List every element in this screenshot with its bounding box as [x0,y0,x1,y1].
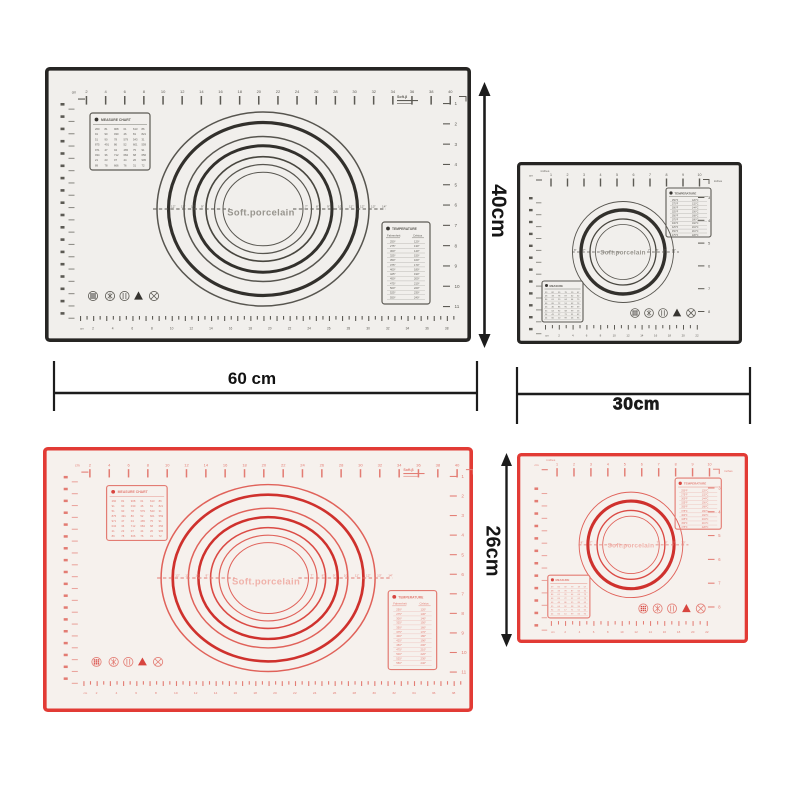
svg-text:425°F: 425°F [681,518,688,521]
svg-text:30: 30 [372,691,376,695]
svg-text:6: 6 [455,203,458,208]
svg-text:216°C: 216°C [692,231,699,233]
svg-text:666: 666 [114,163,119,167]
svg-text:9": 9" [673,541,676,545]
svg-text:90: 90 [105,132,108,136]
svg-text:36: 36 [425,327,429,331]
svg-text:30cm: 30cm [613,394,660,414]
svg-text:684: 684 [140,524,145,528]
svg-text:Celsius: Celsius [413,234,423,238]
svg-text:2: 2 [96,691,98,695]
svg-text:210°: 210° [421,648,427,652]
svg-text:68: 68 [150,524,154,528]
svg-text:10: 10 [161,89,166,94]
svg-text:8: 8 [155,691,157,695]
svg-text:12: 12 [626,334,630,338]
svg-text:34: 34 [391,89,396,94]
svg-text:01: 01 [124,127,127,131]
svg-text:200°: 200° [421,643,427,647]
svg-text:24: 24 [313,691,317,695]
svg-text:450°: 450° [396,643,402,647]
svg-text:24: 24 [307,327,311,331]
svg-text:475°F: 475°F [672,235,679,237]
svg-text:Soft.porcelain: Soft.porcelain [232,577,300,587]
svg-text:32: 32 [378,462,382,467]
svg-text:12": 12" [360,205,365,209]
svg-text:613: 613 [150,499,155,503]
svg-text:10": 10" [191,205,196,209]
svg-text:7": 7" [648,248,651,252]
svg-text:350°F: 350°F [672,215,679,217]
svg-text:MEASURE: MEASURE [550,284,564,288]
svg-text:500°: 500° [396,652,402,656]
svg-text:192°C: 192°C [692,223,699,225]
svg-text:132°C: 132°C [692,204,699,206]
svg-text:04: 04 [114,148,117,152]
svg-text:034: 034 [95,153,100,157]
svg-text:250°F: 250°F [672,200,679,202]
svg-text:10: 10 [174,691,178,695]
svg-text:579: 579 [140,509,145,513]
svg-text:7": 7" [590,541,593,545]
svg-text:18: 18 [237,89,242,94]
svg-text:47: 47 [121,519,125,523]
svg-text:250°: 250° [396,607,402,611]
svg-text:46: 46 [124,132,127,136]
svg-text:9: 9 [692,463,694,467]
svg-text:36: 36 [105,153,108,157]
svg-text:34: 34 [412,691,416,695]
svg-text:22: 22 [276,89,281,94]
svg-text:Soft.porcelain: Soft.porcelain [600,249,645,256]
svg-text:8: 8 [455,243,458,248]
svg-text:543: 543 [133,137,138,141]
svg-text:475°: 475° [390,281,396,285]
svg-text:MEASURE CHART: MEASURE CHART [101,118,132,122]
svg-text:68: 68 [133,153,136,157]
svg-text:8: 8 [151,327,153,331]
svg-text:Fahrenheit: Fahrenheit [393,602,407,606]
svg-text:150°: 150° [414,253,420,257]
svg-text:40: 40 [448,89,453,94]
svg-text:TEMPERATURE: TEMPERATURE [675,191,697,195]
svg-text:76: 76 [124,163,127,167]
svg-text:12": 12" [366,574,371,578]
svg-text:9": 9" [333,574,336,578]
svg-text:7": 7" [305,205,308,209]
svg-text:275°: 275° [396,612,402,616]
svg-text:28: 28 [347,327,351,331]
svg-text:8": 8" [656,248,659,252]
svg-text:72: 72 [159,534,163,538]
svg-text:78: 78 [114,137,117,141]
svg-text:21: 21 [112,529,116,533]
svg-text:9": 9" [664,248,667,252]
svg-text:4: 4 [600,173,602,177]
svg-text:36: 36 [121,524,125,528]
svg-text:5: 5 [616,173,618,177]
svg-text:2: 2 [89,462,91,467]
svg-text:86: 86 [159,499,163,503]
svg-text:240°: 240° [421,661,427,665]
svg-text:31: 31 [133,163,136,167]
svg-text:90: 90 [105,137,108,141]
svg-text:375°F: 375°F [681,510,688,513]
svg-text:525°: 525° [390,291,396,295]
svg-text:10: 10 [707,463,711,467]
svg-text:38: 38 [445,327,449,331]
svg-text:971: 971 [112,519,117,523]
svg-text:2: 2 [567,173,569,177]
svg-text:cm: cm [75,464,80,468]
svg-text:46: 46 [140,504,144,508]
svg-text:90: 90 [121,504,125,508]
svg-text:325°F: 325°F [672,212,679,214]
svg-text:18: 18 [248,327,252,331]
svg-text:400°: 400° [396,634,402,638]
svg-text:91: 91 [95,132,98,136]
svg-text:995: 995 [159,529,164,533]
svg-text:543: 543 [150,509,155,513]
svg-text:325°: 325° [396,621,402,625]
svg-text:908: 908 [114,127,119,131]
svg-text:cm: cm [534,463,539,467]
svg-text:450°F: 450°F [681,522,688,525]
svg-text:3: 3 [455,142,458,147]
svg-text:32: 32 [372,89,377,94]
svg-text:36: 36 [432,691,436,695]
svg-text:01: 01 [140,499,144,503]
svg-text:425°F: 425°F [672,227,679,229]
svg-text:190°: 190° [421,639,427,643]
svg-text:9": 9" [327,205,330,209]
svg-text:8: 8 [675,463,677,467]
svg-text:240°: 240° [414,295,420,299]
svg-text:180°: 180° [414,267,420,271]
svg-text:9": 9" [206,574,209,578]
svg-text:26: 26 [333,691,337,695]
svg-text:20: 20 [691,630,695,634]
svg-text:16: 16 [663,630,667,634]
svg-text:375°F: 375°F [672,219,679,221]
svg-text:400°: 400° [390,267,396,271]
svg-text:3: 3 [590,463,592,467]
svg-text:Soft.porcelain: Soft.porcelain [608,542,655,549]
svg-text:2: 2 [455,122,458,127]
svg-text:81: 81 [133,132,136,136]
svg-text:971: 971 [95,148,100,152]
svg-text:14": 14" [382,205,387,209]
svg-text:cm: cm [529,174,534,178]
svg-text:90: 90 [121,509,125,513]
svg-text:160°: 160° [414,258,420,262]
svg-text:22: 22 [705,630,709,634]
svg-text:4: 4 [112,327,114,331]
svg-text:Celsius: Celsius [420,602,430,606]
svg-text:10": 10" [195,574,200,578]
svg-text:550°: 550° [396,661,402,665]
svg-text:38: 38 [429,89,434,94]
svg-text:20: 20 [682,334,686,338]
svg-text:23: 23 [105,158,108,162]
svg-text:156°C: 156°C [692,212,699,214]
svg-text:8": 8" [574,248,577,252]
svg-text:8": 8" [316,205,319,209]
svg-text:180°C: 180°C [702,510,709,513]
svg-text:14": 14" [388,574,393,578]
svg-text:10: 10 [613,334,617,338]
svg-text:11": 11" [355,574,359,578]
svg-text:425°: 425° [396,639,402,643]
svg-text:22: 22 [695,334,699,338]
svg-text:170°: 170° [421,630,427,634]
svg-text:07: 07 [114,158,117,162]
svg-text:12: 12 [194,691,198,695]
svg-text:875: 875 [95,143,100,147]
svg-text:8": 8" [322,574,325,578]
svg-text:350°: 350° [396,625,402,629]
svg-text:821: 821 [142,132,147,136]
svg-text:86: 86 [114,143,117,147]
svg-text:91: 91 [142,148,145,152]
svg-text:210°: 210° [414,281,420,285]
svg-text:20: 20 [268,327,272,331]
svg-text:666: 666 [131,534,136,538]
svg-text:31: 31 [150,534,154,538]
svg-text:12: 12 [634,630,638,634]
svg-text:300°F: 300°F [672,208,679,210]
svg-text:MEASURE: MEASURE [556,578,570,582]
svg-text:204°C: 204°C [692,227,699,229]
svg-text:6: 6 [641,463,643,467]
svg-text:inches: inches [546,458,555,462]
svg-text:300°: 300° [396,616,402,620]
svg-text:130°: 130° [414,244,420,248]
svg-text:28: 28 [333,89,338,94]
svg-text:216°C: 216°C [702,522,709,525]
svg-text:275°F: 275°F [681,493,688,496]
svg-text:170°: 170° [414,263,420,267]
svg-text:9: 9 [682,173,684,177]
svg-text:26: 26 [314,89,319,94]
svg-text:120°: 120° [414,240,420,244]
svg-text:220°: 220° [421,652,427,656]
svg-text:525°: 525° [396,657,402,661]
svg-text:550°: 550° [390,295,396,299]
svg-text:190°: 190° [414,272,420,276]
svg-text:Soft.β: Soft.β [403,468,414,472]
svg-text:12: 12 [189,327,193,331]
svg-text:375°: 375° [390,263,396,267]
svg-text:204°C: 204°C [702,518,709,521]
svg-text:9: 9 [455,264,458,269]
svg-text:3: 3 [583,173,585,177]
svg-text:11: 11 [455,304,460,309]
svg-text:10: 10 [698,173,702,177]
svg-text:350°: 350° [390,258,396,262]
svg-text:300°F: 300°F [681,498,688,501]
svg-text:908: 908 [131,499,136,503]
svg-text:220°: 220° [414,286,420,290]
svg-text:23: 23 [121,529,125,533]
svg-text:18: 18 [677,630,681,634]
svg-text:250°: 250° [390,240,396,244]
svg-text:10: 10 [461,650,467,655]
svg-text:475°: 475° [396,648,402,652]
svg-text:40cm: 40cm [487,184,510,238]
svg-text:030: 030 [131,504,136,508]
svg-text:81: 81 [121,499,125,503]
svg-text:13": 13" [371,205,376,209]
svg-text:132°C: 132°C [702,493,709,496]
svg-text:712: 712 [114,153,119,157]
svg-text:07: 07 [131,529,135,533]
svg-text:130°: 130° [421,612,427,616]
svg-text:44: 44 [140,529,144,533]
svg-text:78: 78 [121,534,125,538]
svg-text:140°: 140° [414,249,420,253]
svg-text:TEMPERATURE: TEMPERATURE [392,227,418,231]
svg-text:10: 10 [455,284,461,289]
svg-text:10: 10 [620,630,624,634]
svg-text:81: 81 [150,504,154,508]
svg-text:86: 86 [131,514,135,518]
svg-text:Fahrenheit: Fahrenheit [387,234,401,238]
svg-text:5: 5 [624,463,626,467]
svg-text:78: 78 [131,509,135,513]
svg-text:86: 86 [142,127,145,131]
svg-text:325°: 325° [390,253,396,257]
svg-text:350°F: 350°F [681,506,688,509]
svg-text:12: 12 [184,462,188,467]
svg-text:13": 13" [377,574,382,578]
svg-text:22: 22 [293,691,297,695]
svg-text:10": 10" [681,541,685,545]
svg-text:14: 14 [199,89,204,94]
svg-text:120°C: 120°C [702,489,709,492]
svg-text:275°: 275° [390,244,396,248]
svg-text:120°: 120° [421,607,427,611]
svg-text:10": 10" [338,205,343,209]
svg-text:89: 89 [112,534,116,538]
svg-text:995: 995 [142,158,147,162]
svg-text:601: 601 [133,143,138,147]
svg-text:6: 6 [633,173,635,177]
svg-text:75: 75 [133,148,136,152]
svg-text:260: 260 [95,127,100,131]
svg-text:230°: 230° [414,291,420,295]
svg-text:1: 1 [550,173,552,177]
svg-text:51: 51 [112,509,116,513]
svg-text:8": 8" [581,541,584,545]
svg-text:76: 76 [140,534,144,538]
svg-text:5: 5 [455,182,458,187]
svg-text:180°: 180° [421,634,427,638]
svg-text:144°C: 144°C [702,498,709,501]
svg-text:12: 12 [180,89,185,94]
svg-text:22: 22 [281,462,285,467]
svg-text:230°: 230° [421,657,427,661]
svg-text:TEMPERATURE: TEMPERATURE [684,482,706,486]
svg-text:10: 10 [170,327,174,331]
svg-text:300°: 300° [390,249,396,253]
svg-text:75: 75 [150,519,154,523]
svg-text:034: 034 [112,524,117,528]
svg-text:inches: inches [724,469,733,473]
svg-text:22: 22 [288,327,292,331]
svg-text:Soft.porcelain: Soft.porcelain [227,207,294,218]
svg-text:491: 491 [105,143,110,147]
svg-text:60 cm: 60 cm [228,369,276,388]
svg-text:465: 465 [140,519,145,523]
svg-text:30: 30 [352,89,357,94]
svg-text:30: 30 [366,327,370,331]
svg-text:7": 7" [583,248,586,252]
svg-text:32: 32 [392,691,396,695]
svg-text:14: 14 [209,327,213,331]
svg-text:10": 10" [672,248,676,252]
svg-text:11": 11" [349,205,353,209]
svg-text:36: 36 [410,89,415,94]
svg-text:7": 7" [310,574,313,578]
svg-text:91: 91 [112,504,116,508]
svg-text:26: 26 [150,529,154,533]
svg-text:684: 684 [124,153,129,157]
svg-text:11: 11 [461,670,466,675]
svg-text:91: 91 [159,519,163,523]
svg-text:20: 20 [273,691,277,695]
svg-text:78: 78 [105,163,108,167]
svg-text:821: 821 [159,504,164,508]
svg-text:14: 14 [649,630,653,634]
svg-text:10": 10" [344,574,349,578]
svg-text:28: 28 [353,691,357,695]
svg-text:425°: 425° [390,272,396,276]
svg-text:52: 52 [140,514,144,518]
svg-text:16: 16 [218,89,223,94]
svg-text:11": 11" [181,205,185,209]
svg-text:559: 559 [142,143,147,147]
svg-text:4: 4 [115,691,117,695]
svg-text:16: 16 [654,334,658,338]
svg-text:52: 52 [124,143,127,147]
svg-text:559: 559 [159,514,164,518]
svg-text:26cm: 26cm [482,525,504,576]
svg-text:24: 24 [295,89,300,94]
svg-text:4: 4 [455,162,458,167]
svg-text:475°F: 475°F [681,526,688,529]
svg-text:11": 11" [185,574,189,578]
svg-text:cm: cm [72,91,77,95]
svg-text:12": 12" [175,574,180,578]
svg-text:MEASURE CHART: MEASURE CHART [118,490,148,494]
svg-text:12": 12" [171,205,176,209]
svg-text:275°F: 275°F [672,204,679,206]
svg-text:228°C: 228°C [692,235,699,237]
svg-text:450°: 450° [390,277,396,281]
svg-text:4: 4 [607,463,609,467]
svg-text:712: 712 [131,524,136,528]
svg-text:26: 26 [327,327,331,331]
svg-text:9": 9" [201,205,204,209]
svg-text:192°C: 192°C [702,514,709,517]
svg-text:1: 1 [455,101,458,106]
svg-text:81: 81 [105,127,108,131]
svg-text:450°F: 450°F [672,231,679,233]
svg-text:400°F: 400°F [681,514,688,517]
svg-text:7: 7 [455,223,458,228]
svg-text:875: 875 [112,514,117,518]
